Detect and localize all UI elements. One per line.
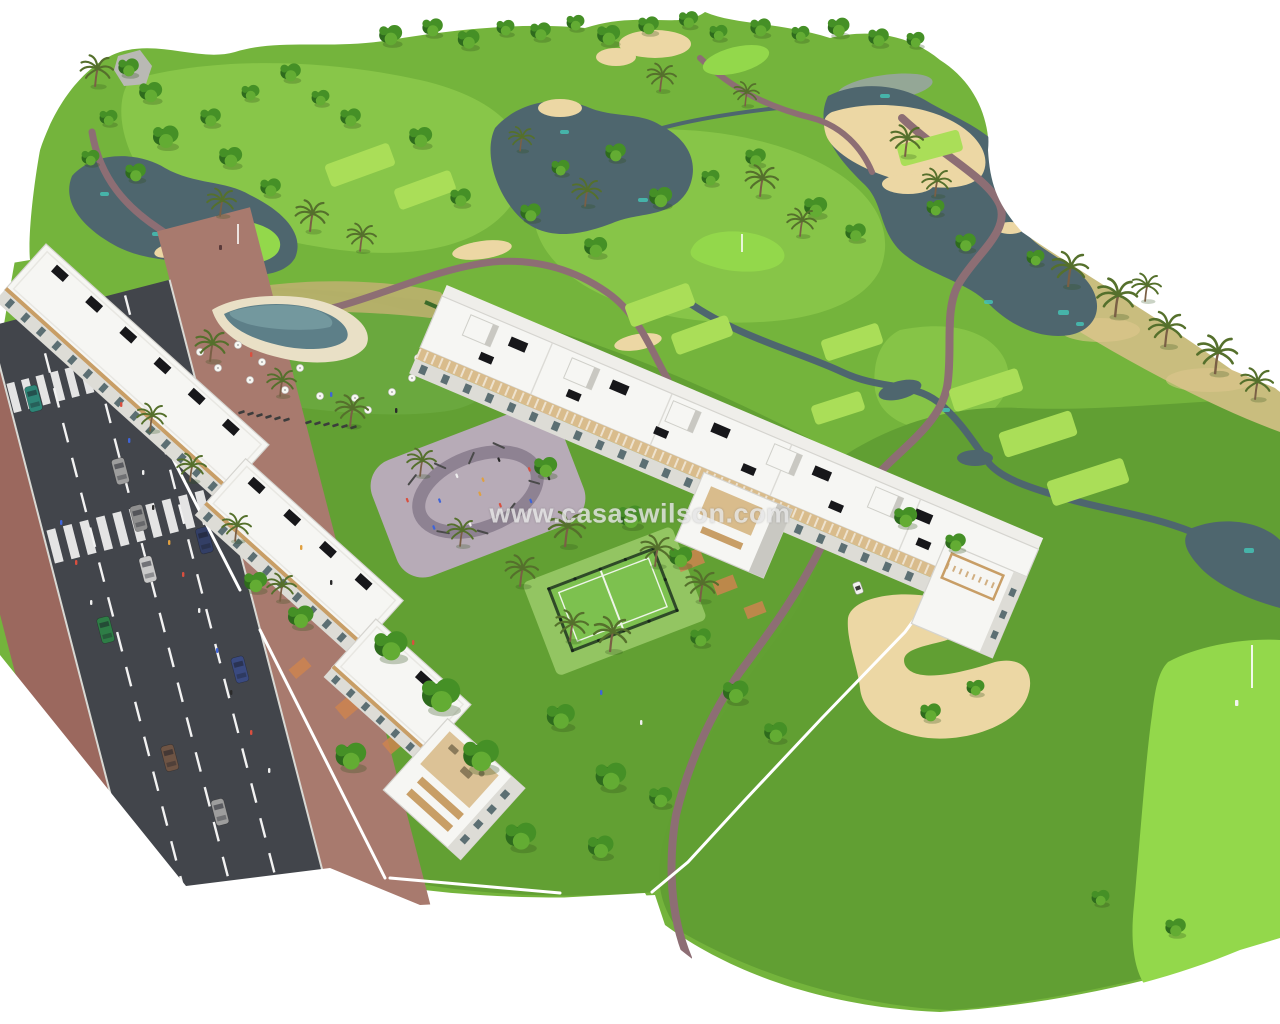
pedestrian: [268, 768, 270, 773]
pedestrian: [168, 540, 170, 545]
umbrella: [258, 358, 265, 365]
pond: [957, 450, 993, 466]
umbrella: [214, 364, 221, 371]
pedestrian: [128, 438, 130, 443]
pedestrian: [60, 520, 62, 525]
umbrella: [234, 341, 241, 348]
bunker: [882, 174, 934, 194]
pedestrian: [250, 352, 252, 357]
golfer: [219, 245, 222, 250]
pedestrian: [120, 402, 122, 407]
bunker: [538, 99, 582, 117]
umbrella: [388, 388, 395, 395]
pedestrian: [90, 600, 92, 605]
pedestrian: [412, 640, 414, 645]
pedestrian: [216, 648, 218, 653]
pedestrian: [75, 560, 77, 565]
golfer: [1235, 700, 1238, 706]
render-image: www.casaswilson.com: [0, 0, 1280, 1024]
pedestrian: [250, 730, 252, 735]
pedestrian: [300, 545, 302, 550]
pedestrian: [198, 608, 200, 613]
pedestrian: [152, 505, 154, 510]
pedestrian: [330, 392, 332, 397]
pedestrian: [330, 580, 332, 585]
pedestrian: [142, 470, 144, 475]
watermark: www.casaswilson.com: [489, 499, 790, 530]
tree: [828, 18, 850, 40]
umbrella: [246, 376, 253, 383]
umbrella: [296, 364, 303, 371]
bunker: [596, 48, 636, 66]
umbrella: [281, 386, 288, 393]
pedestrian: [182, 572, 184, 577]
umbrella: [316, 392, 323, 399]
pedestrian: [230, 690, 232, 695]
pedestrian: [600, 690, 602, 695]
pedestrian: [640, 720, 642, 725]
pedestrian: [395, 408, 397, 413]
